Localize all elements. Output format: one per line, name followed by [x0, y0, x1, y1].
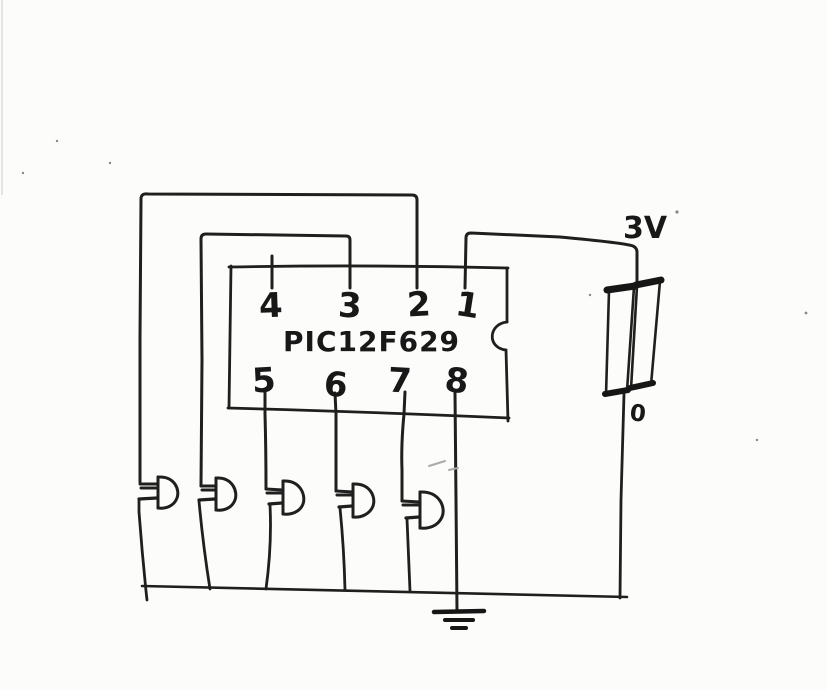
led-4 — [336, 484, 374, 590]
pin-label-6: 6 — [322, 364, 349, 406]
chip-notch-icon — [492, 322, 507, 350]
wire-battery-to-rail — [620, 394, 624, 598]
wire-pin8-to-ground — [455, 393, 457, 611]
led-5-cathode-wire — [407, 519, 410, 591]
led-2 — [199, 478, 236, 589]
pin-label-3: 3 — [337, 286, 362, 327]
pin-label-7: 7 — [387, 361, 413, 402]
supply-voltage-label: 3V — [623, 211, 668, 246]
led-4-cathode-wire — [340, 508, 345, 590]
wire-pin6-to-led4 — [335, 393, 336, 491]
scanner-edge-artifact — [1, 0, 3, 195]
wire-pin5-to-led3 — [265, 392, 266, 489]
circuit-diagram: 4 3 2 1 PIC12F629 5 6 7 8 3V 0 — [0, 0, 827, 690]
battery-cell-left — [606, 287, 634, 395]
ground-rail — [142, 586, 627, 597]
pin-label-5: 5 — [251, 360, 277, 401]
battery-icon — [605, 280, 661, 395]
ground-symbol-icon — [434, 611, 484, 628]
led-3 — [266, 481, 304, 589]
wire-pin3-to-led2 — [201, 234, 350, 486]
pin-label-8: 8 — [443, 360, 471, 403]
pin-label-4: 4 — [258, 286, 283, 327]
wire-pin7-to-led5 — [402, 392, 405, 501]
ground-zero-label: 0 — [628, 400, 647, 428]
wire-pin1-to-battery — [465, 233, 637, 288]
battery-cell-right — [631, 281, 660, 389]
pin-label-2: 2 — [406, 284, 432, 325]
led-3-cathode-wire — [266, 505, 271, 589]
scanned-schematic-page: 4 3 2 1 PIC12F629 5 6 7 8 3V 0 — [0, 0, 827, 690]
led-1 — [139, 477, 178, 600]
pin-label-1: 1 — [453, 284, 483, 327]
chip-name-label: PIC12F629 — [283, 325, 460, 358]
led-2-cathode-wire — [199, 501, 210, 589]
led-5 — [402, 492, 443, 591]
